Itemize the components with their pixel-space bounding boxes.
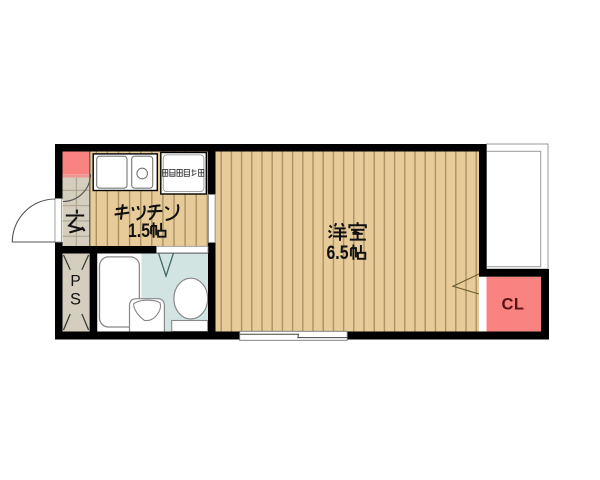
svg-text:CL: CL — [502, 296, 525, 314]
svg-text:1.5: 1.5 — [128, 221, 150, 242]
svg-text:6.5: 6.5 — [327, 243, 349, 264]
svg-text:P: P — [70, 273, 80, 290]
svg-text:S: S — [70, 291, 81, 309]
